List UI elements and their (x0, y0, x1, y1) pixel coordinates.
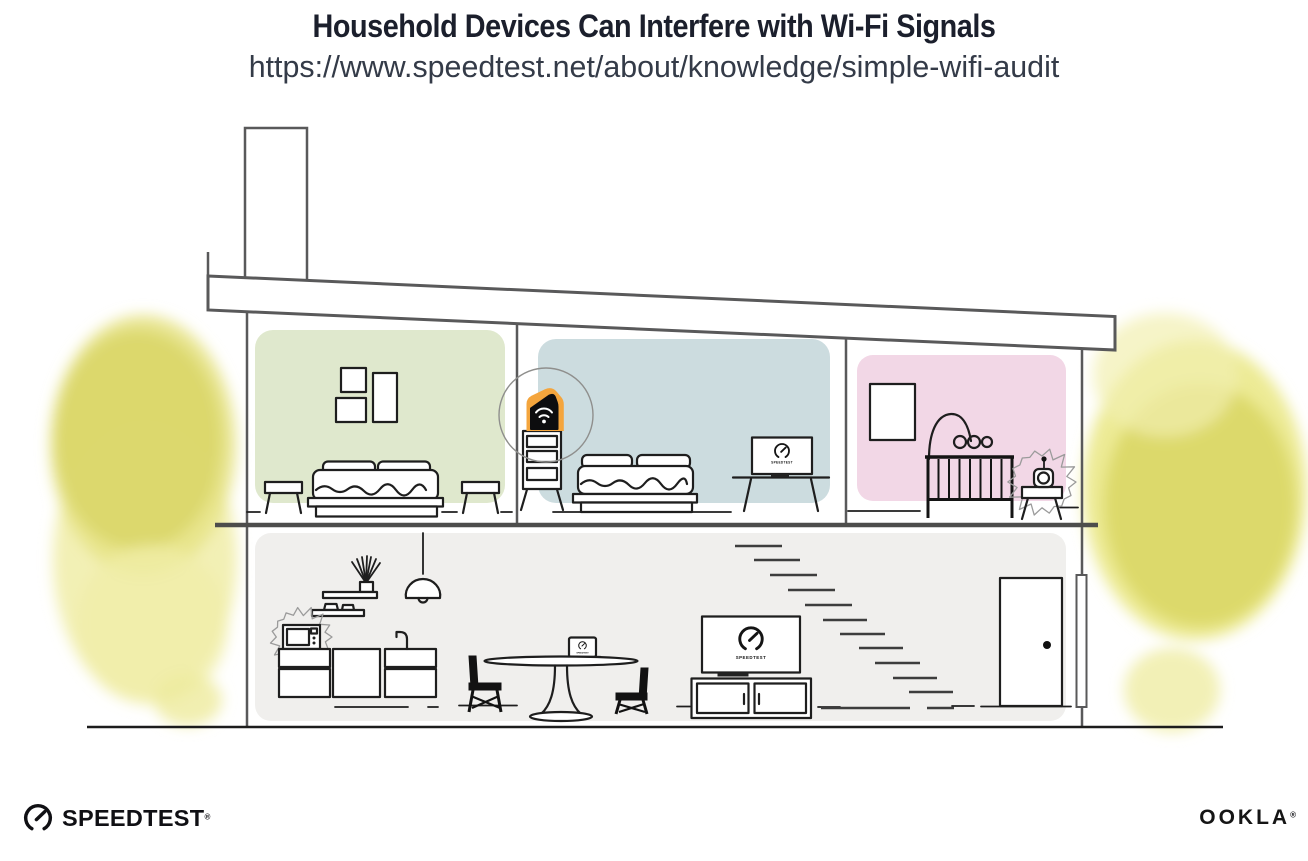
ookla-trademark: ® (1290, 811, 1296, 820)
tv-screen-label: SPEEDTEST (736, 655, 767, 660)
baby-monitor-table (1022, 487, 1062, 519)
door-knob (1043, 641, 1051, 649)
ookla-logo-text: OOKLA (1199, 806, 1290, 829)
speedtest-logo-text: SPEEDTEST (62, 805, 204, 831)
watercolor-bush-left (50, 315, 237, 726)
picture-frame-icon (373, 373, 397, 422)
downspout (1077, 575, 1087, 707)
bed (308, 462, 443, 517)
picture-frame-icon (341, 368, 366, 392)
tv-base (718, 673, 749, 677)
ookla-logo: OOKLA® (1199, 806, 1296, 830)
chimney (245, 128, 307, 281)
watercolor-bush-right (1083, 313, 1307, 732)
speedtest-logo: SPEEDTEST® (22, 802, 210, 834)
bedroom-tv: SPEEDTEST (752, 438, 812, 478)
media-console (692, 679, 812, 719)
speedtest-trademark: ® (204, 812, 210, 821)
speedtest-gauge-icon (22, 802, 54, 834)
living-room-tv: SPEEDTEST (702, 617, 800, 677)
picture-frame-icon (336, 398, 366, 422)
infographic-page: Household Devices Can Interfere with Wi-… (0, 0, 1308, 861)
tv-base (771, 474, 789, 477)
laptop-screen-label: SPEEDTEST (576, 653, 589, 655)
tv-screen-label: SPEEDTEST (771, 461, 793, 465)
wall-shelf (323, 592, 377, 598)
microwave-icon (283, 625, 320, 649)
picture-frame-icon (870, 384, 915, 440)
house-cross-section-illustration: SPEEDTEST (0, 0, 1308, 861)
